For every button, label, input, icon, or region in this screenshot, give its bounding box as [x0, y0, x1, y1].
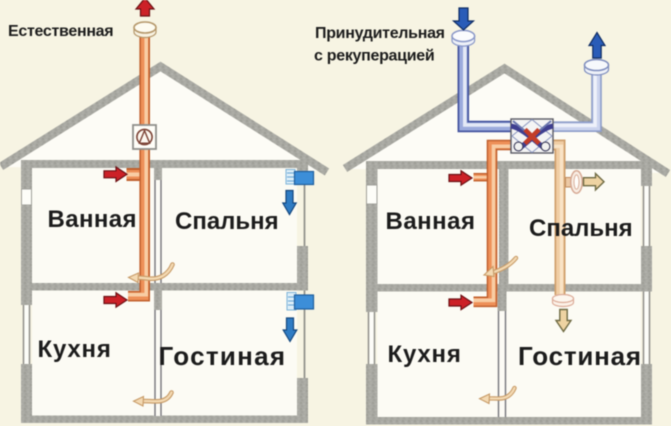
svg-text:Кухня: Кухня: [388, 341, 462, 368]
svg-text:Естественная: Естественная: [8, 23, 113, 40]
svg-text:Спальня: Спальня: [175, 208, 279, 235]
svg-text:с рекуперацией: с рекуперацией: [314, 48, 434, 65]
svg-text:Ванная: Ванная: [386, 208, 476, 235]
svg-text:Спальня: Спальня: [529, 215, 633, 242]
svg-text:Гостиная: Гостиная: [159, 341, 287, 371]
svg-text:Ванная: Ванная: [48, 206, 137, 233]
svg-text:Гостиная: Гостиная: [518, 341, 642, 371]
svg-text:Кухня: Кухня: [38, 336, 112, 363]
svg-text:Принудительная: Принудительная: [315, 25, 445, 42]
